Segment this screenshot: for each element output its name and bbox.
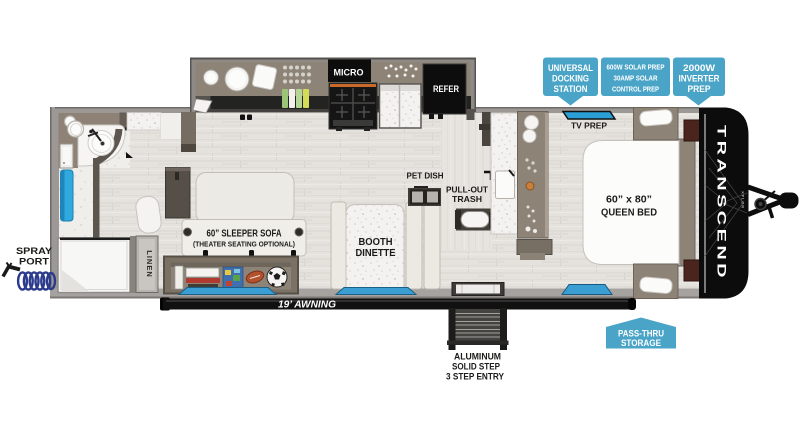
svg-text:TRANSCEND: TRANSCEND [715, 125, 727, 281]
svg-text:CONTROL PREP: CONTROL PREP [612, 85, 659, 94]
svg-text:3 STEP ENTRY: 3 STEP ENTRY [446, 372, 505, 383]
svg-text:LINEN: LINEN [145, 250, 154, 278]
svg-text:TRASH: TRASH [452, 194, 482, 204]
svg-text:30AMP SOLAR: 30AMP SOLAR [614, 74, 658, 83]
svg-text:PREP: PREP [688, 84, 712, 95]
svg-text:BOOTH: BOOTH [359, 237, 393, 248]
svg-text:60” SLEEPER SOFA: 60” SLEEPER SOFA [207, 229, 282, 240]
svg-text:INVERTER: INVERTER [679, 74, 720, 85]
svg-text:MICRO: MICRO [334, 68, 364, 78]
svg-text:PORT: PORT [19, 257, 50, 267]
svg-text:60” x 80”: 60” x 80” [606, 195, 652, 206]
svg-text:600W SOLAR PREP: 600W SOLAR PREP [607, 63, 665, 72]
svg-text:19’ AWNING: 19’ AWNING [278, 300, 336, 311]
svg-text:UNIVERSAL: UNIVERSAL [548, 63, 593, 74]
svg-text:REFER: REFER [433, 84, 459, 94]
svg-text:SPRAY: SPRAY [16, 246, 52, 256]
svg-text:(THEATER SEATING OPTIONAL): (THEATER SEATING OPTIONAL) [193, 240, 295, 249]
svg-text:XPLOR: XPLOR [741, 191, 746, 209]
svg-text:DOCKING: DOCKING [552, 74, 589, 85]
svg-text:2000W: 2000W [683, 63, 715, 74]
svg-text:TV PREP: TV PREP [571, 121, 607, 131]
svg-text:STORAGE: STORAGE [621, 338, 661, 349]
svg-text:PULL-OUT: PULL-OUT [446, 185, 489, 195]
svg-text:QUEEN BED: QUEEN BED [601, 208, 657, 219]
svg-text:DINETTE: DINETTE [356, 248, 396, 259]
svg-text:PET DISH: PET DISH [407, 171, 444, 181]
svg-text:STATION: STATION [554, 84, 588, 95]
